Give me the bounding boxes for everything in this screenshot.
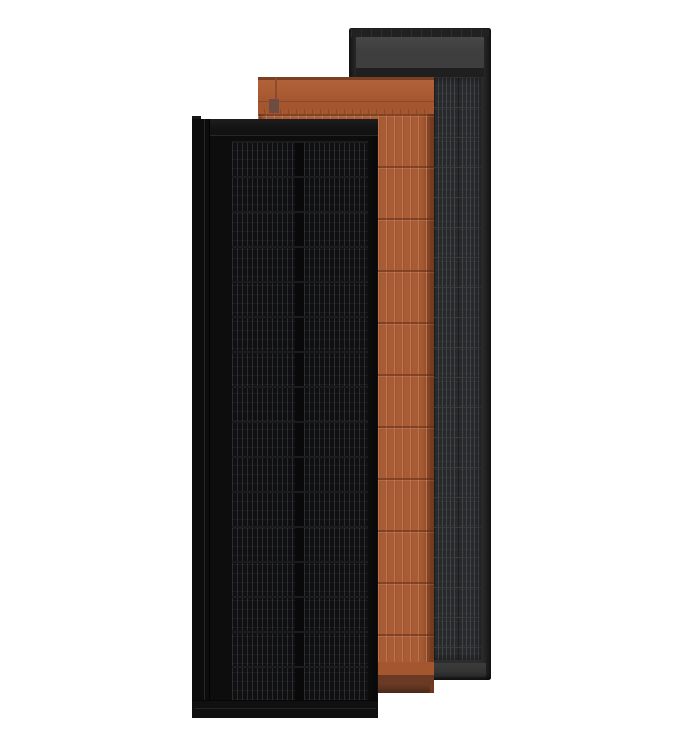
slate-top-bar [351, 29, 489, 37]
black-side-rail [192, 119, 210, 718]
black-top-frame [192, 119, 378, 136]
black-row-seams [232, 141, 368, 704]
slate-header-gap [356, 68, 484, 77]
terracotta-joint-line [275, 77, 277, 101]
terracotta-joint-patch [269, 99, 279, 113]
black-bottom-seam [194, 708, 376, 709]
terracotta-subheader-band [258, 102, 434, 114]
black-panel-body [192, 119, 378, 718]
slate-header-plate [356, 37, 484, 68]
black-rail-seam [204, 119, 205, 718]
black-bottom-frame [192, 700, 378, 718]
black-solar-panel [192, 116, 378, 718]
product-render-scene [0, 0, 684, 748]
terracotta-header-band [258, 80, 434, 102]
